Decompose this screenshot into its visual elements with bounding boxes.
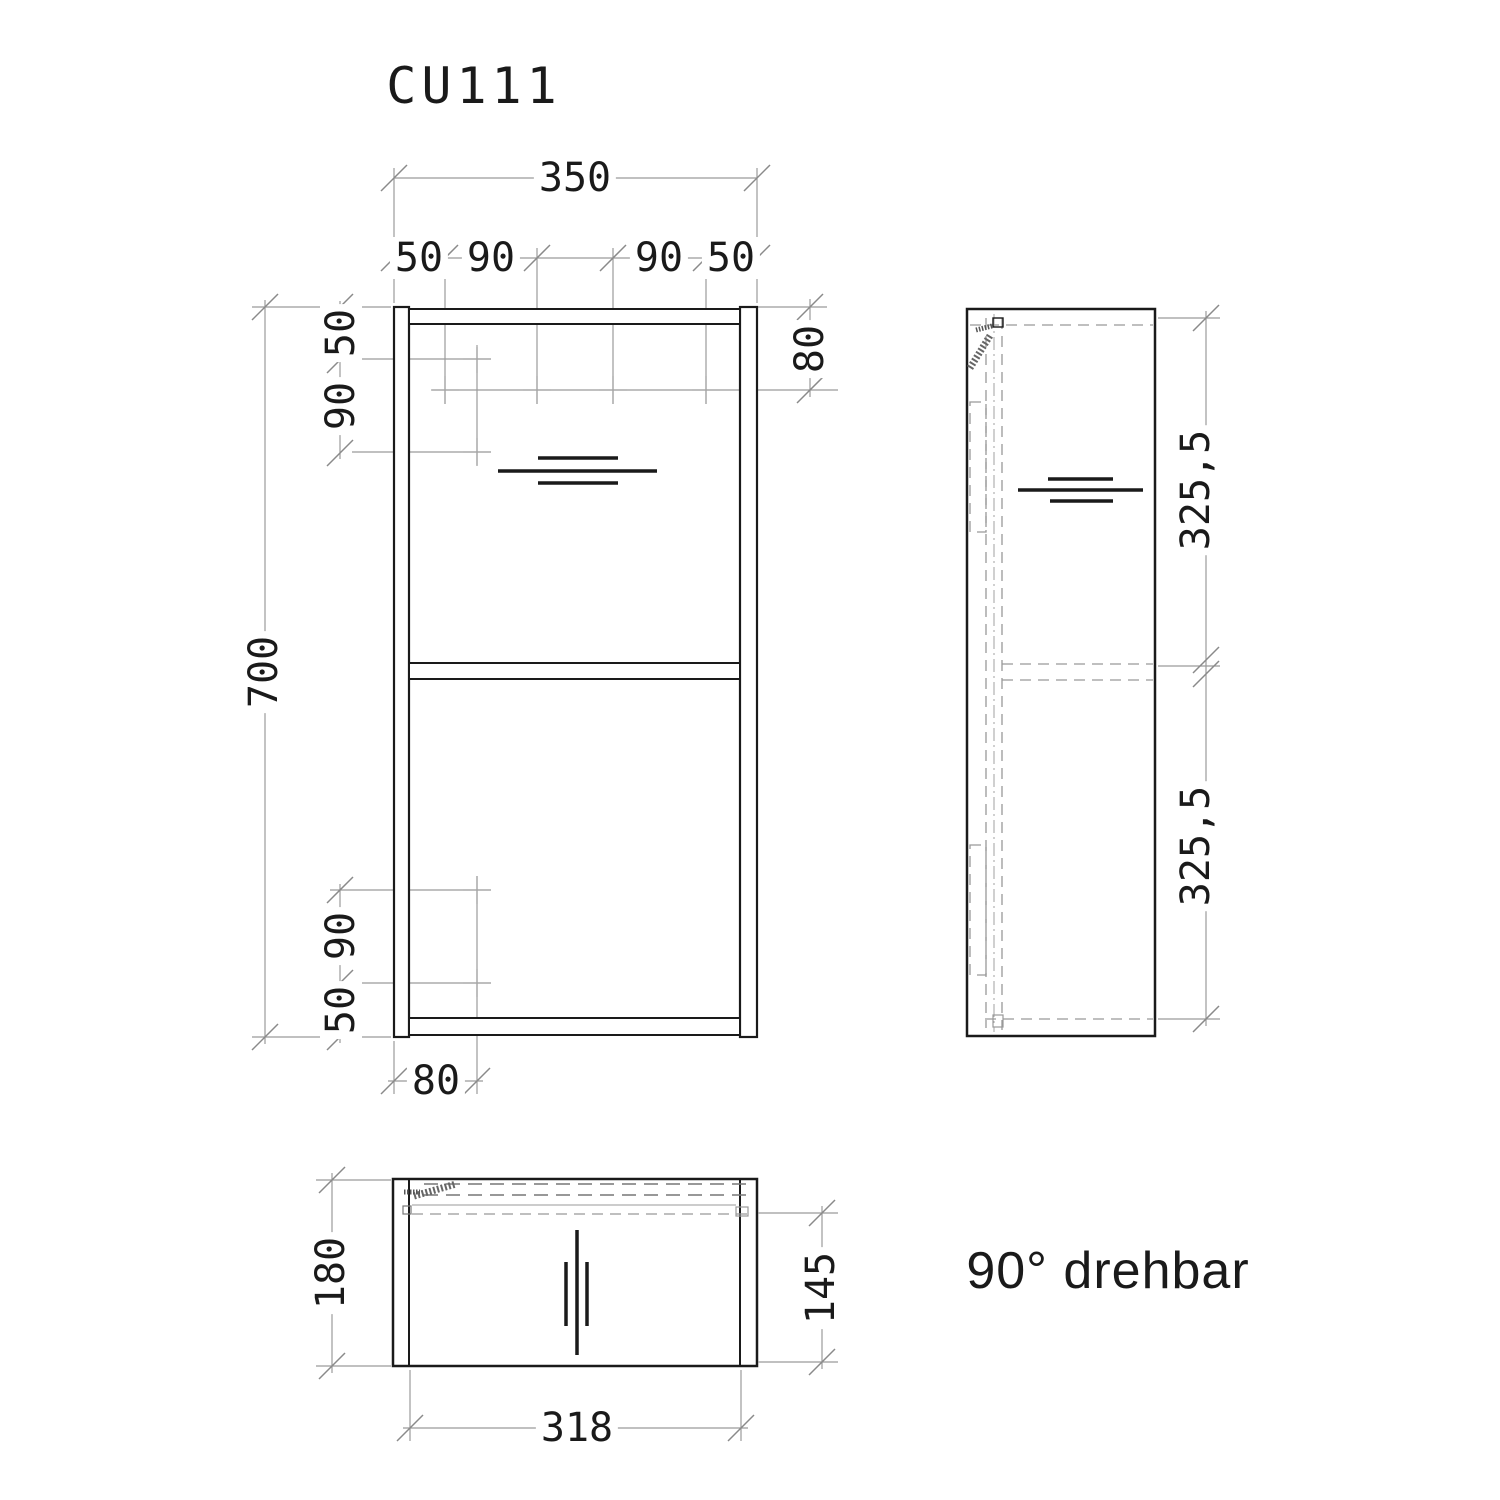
technical-drawing-page: CU111 350 50 90 90 50 80 50 90 700 90 50…	[0, 0, 1500, 1500]
rotatable-note: 90° drehbar	[966, 1245, 1249, 1297]
dim-col-50-left: 50	[390, 237, 448, 279]
dim-side-height-lower: 325,5	[1175, 781, 1217, 911]
dim-col-50-right: 50	[702, 237, 760, 279]
dim-row-90-bottom: 90	[320, 907, 362, 965]
top-view-drawing	[393, 1179, 757, 1366]
side-view-drawing	[967, 309, 1155, 1036]
dim-offset-bottom-left: 80	[407, 1060, 465, 1102]
dim-row-50-bottom: 50	[320, 981, 362, 1039]
dim-row-90-top: 90	[320, 377, 362, 435]
dim-side-height-upper: 325,5	[1175, 425, 1217, 555]
dim-depth-inner: 145	[800, 1247, 842, 1329]
dim-height-total: 700	[243, 631, 285, 713]
dim-depth-total: 180	[310, 1232, 352, 1314]
door-handle-front	[498, 458, 657, 483]
dim-row-50-top: 50	[320, 304, 362, 362]
dim-width-total: 350	[534, 157, 616, 199]
dim-width-inner: 318	[536, 1407, 618, 1449]
dim-offset-top-right: 80	[789, 320, 831, 378]
dim-col-90-left: 90	[462, 237, 520, 279]
drawing-canvas	[0, 0, 1500, 1500]
page-title: CU111	[386, 61, 562, 111]
front-view-drawing	[394, 307, 757, 1037]
dim-col-90-right: 90	[630, 237, 688, 279]
